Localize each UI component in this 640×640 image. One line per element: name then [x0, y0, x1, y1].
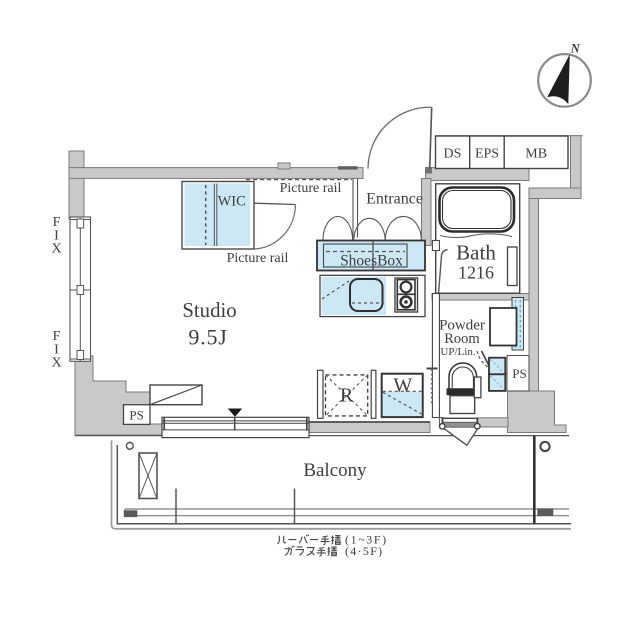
svg-text:Entrance: Entrance	[366, 190, 423, 207]
svg-text:X: X	[51, 356, 61, 371]
svg-text:ShoesBox: ShoesBox	[340, 253, 403, 270]
svg-text:Picture rail: Picture rail	[280, 181, 342, 196]
svg-text:N: N	[570, 42, 581, 56]
svg-text:Studio: Studio	[182, 299, 236, 322]
svg-text:(4·5F): (4·5F)	[345, 544, 383, 558]
svg-text:Bath: Bath	[456, 240, 496, 264]
svg-text:EPS: EPS	[475, 147, 499, 162]
svg-text:9.5J: 9.5J	[188, 325, 227, 350]
svg-text:Balcony: Balcony	[303, 460, 367, 481]
svg-text:X: X	[51, 242, 61, 257]
svg-text:PS: PS	[129, 408, 143, 423]
svg-text:UP/Lin.: UP/Lin.	[440, 346, 475, 358]
svg-text:DS: DS	[444, 147, 462, 162]
svg-text:1216: 1216	[458, 262, 494, 282]
svg-text:WIC: WIC	[218, 194, 246, 210]
svg-text:Room: Room	[444, 331, 480, 347]
svg-text:W: W	[393, 375, 412, 397]
svg-text:Picture rail: Picture rail	[227, 251, 289, 266]
svg-text:MB: MB	[525, 147, 547, 162]
svg-text:PS: PS	[512, 366, 526, 381]
svg-text:R: R	[340, 385, 354, 407]
